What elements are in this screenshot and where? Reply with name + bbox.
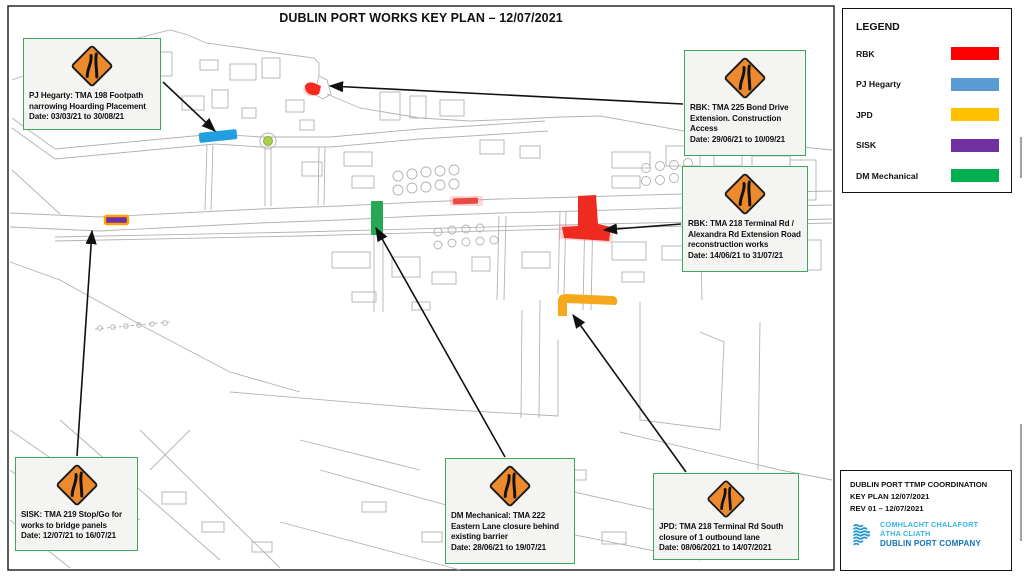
callout-date: Date: 14/06/21 to 31/07/21 — [688, 251, 802, 262]
callout-text: Access — [690, 124, 800, 135]
callout-text: closure of 1 outbound lane — [659, 533, 793, 544]
road-narrows-sign-icon — [54, 462, 100, 508]
page-title: DUBLIN PORT WORKS KEY PLAN – 12/07/2021 — [8, 11, 834, 25]
works-marking-rbk-terminal-small — [453, 198, 478, 205]
legend-row-jpd: JPD — [856, 108, 999, 121]
logo-text-irish-2: ÁTHA CLIATH — [880, 529, 981, 538]
callout-text: reconstruction works — [688, 240, 802, 251]
legend-label: SISK — [856, 140, 876, 150]
callout-rbk-tma-218: RBK: TMA 218 Terminal Rd / Alexandra Rd … — [682, 166, 808, 272]
callout-pj-hegarty-tma-198: PJ Hegarty: TMA 198 Footpath narrowing H… — [23, 38, 161, 130]
works-marking-sisk-bridge — [105, 216, 128, 224]
legend-label: DM Mechanical — [856, 171, 918, 181]
callout-text: existing barrier — [451, 532, 569, 543]
legend-row-pj-hegarty: PJ Hegarty — [856, 78, 999, 91]
callout-text: RBK: TMA 225 Bond Drive — [690, 103, 800, 114]
callout-text: DM Mechanical: TMA 222 — [451, 511, 569, 522]
legend-swatch-rbk — [951, 47, 999, 60]
legend-swatch-pj-hegarty — [951, 78, 999, 91]
callout-text: Alexandra Rd Extension Road — [688, 230, 802, 241]
callout-jpd-tma-218: JPD: TMA 218 Terminal Rd South closure o… — [653, 473, 799, 560]
callout-text: narrowing Hoarding Placement — [29, 102, 155, 113]
callout-text: works to bridge panels — [21, 521, 132, 532]
callout-date: Date: 12/07/21 to 16/07/21 — [21, 531, 132, 542]
callout-text: Extension. Construction — [690, 114, 800, 125]
dublin-port-logo-icon — [850, 521, 877, 548]
legend-title: LEGEND — [856, 21, 999, 33]
legend-swatch-sisk — [951, 139, 999, 152]
callout-text: PJ Hegarty: TMA 198 Footpath — [29, 91, 155, 102]
callout-date: Date: 08/06/2021 to 14/07/2021 — [659, 543, 793, 554]
title-block: DUBLIN PORT TTMP COORDINATION KEY PLAN 1… — [840, 470, 1012, 571]
road-narrows-sign-icon — [705, 478, 747, 520]
road-narrows-sign-icon — [69, 43, 115, 89]
callout-dm-mechanical-tma-222: DM Mechanical: TMA 222 Eastern Lane clos… — [445, 458, 575, 564]
legend-label: RBK — [856, 49, 875, 59]
road-narrows-sign-icon — [722, 171, 768, 217]
road-narrows-sign-icon — [487, 463, 533, 509]
callout-date: Date: 28/06/21 to 19/07/21 — [451, 543, 569, 554]
legend-label: JPD — [856, 110, 873, 120]
legend-row-sisk: SISK — [856, 139, 999, 152]
title-block-line: REV 01 – 12/07/2021 — [850, 503, 1002, 515]
callout-date: Date: 03/03/21 to 30/08/21 — [29, 112, 155, 123]
callout-text: Eastern Lane closure behind — [451, 522, 569, 533]
dublin-port-logo: COMHLACHT CHALAFORT ÁTHA CLIATH DUBLIN P… — [850, 520, 1002, 549]
legend-row-dm-mechanical: DM Mechanical — [856, 169, 999, 182]
legend-swatch-dm-mechanical — [951, 169, 999, 182]
callout-rbk-tma-225: RBK: TMA 225 Bond Drive Extension. Const… — [684, 50, 806, 156]
title-block-line: DUBLIN PORT TTMP COORDINATION — [850, 479, 1002, 491]
road-narrows-sign-icon — [722, 55, 768, 101]
logo-text-irish-1: COMHLACHT CHALAFORT — [880, 520, 981, 529]
callout-text: JPD: TMA 218 Terminal Rd South — [659, 522, 793, 533]
works-marking-roundabout — [264, 137, 273, 146]
callout-date: Date: 29/06/21 to 10/09/21 — [690, 135, 800, 146]
callout-sisk-tma-219: SISK: TMA 219 Stop/Go for works to bridg… — [15, 457, 138, 551]
logo-text-english: DUBLIN PORT COMPANY — [880, 539, 981, 549]
legend: LEGEND RBK PJ Hegarty JPD SISK DM Mechan… — [842, 8, 1012, 193]
legend-label: PJ Hegarty — [856, 79, 901, 89]
legend-row-rbk: RBK — [856, 47, 999, 60]
callout-text: SISK: TMA 219 Stop/Go for — [21, 510, 132, 521]
callout-text: RBK: TMA 218 Terminal Rd / — [688, 219, 802, 230]
legend-swatch-jpd — [951, 108, 999, 121]
title-block-line: KEY PLAN 12/07/2021 — [850, 491, 1002, 503]
